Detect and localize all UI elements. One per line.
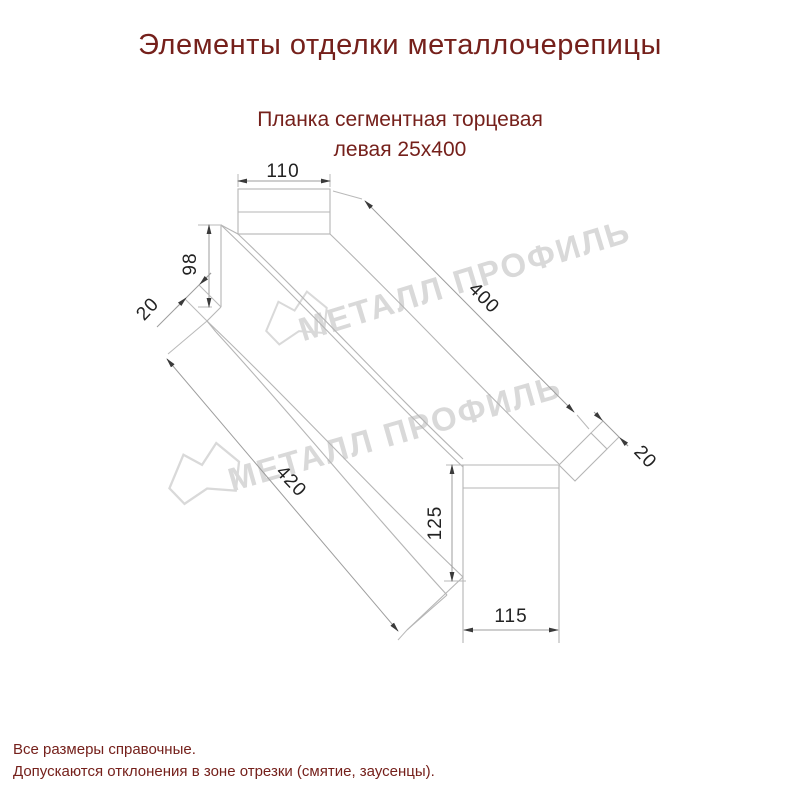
watermark-text-1: МЕТАЛЛ ПРОФИЛЬ <box>294 212 635 348</box>
dim-110: 110 <box>238 161 330 187</box>
dim-125-label: 125 <box>425 506 446 541</box>
dim-420: 420 <box>167 321 407 640</box>
footer-note-2: Допускаются отклонения в зоне отрезки (с… <box>13 761 783 783</box>
dim-20-left: 20 <box>132 273 221 327</box>
dim-20-right: 20 <box>591 412 661 473</box>
dim-20-left-label: 20 <box>132 294 163 325</box>
technical-drawing: МЕТАЛЛ ПРОФИЛЬ МЕТАЛЛ ПРОФИЛЬ <box>0 0 800 800</box>
dim-115: 115 <box>464 606 558 630</box>
footer-note-1: Все размеры справочные. <box>13 739 783 761</box>
dim-98: 98 <box>180 225 222 307</box>
dim-110-label: 110 <box>266 161 299 182</box>
dim-20-right-label: 20 <box>629 442 660 473</box>
footer-notes: Все размеры справочные. Допускаются откл… <box>13 739 783 783</box>
dim-125: 125 <box>425 465 466 581</box>
dim-98-label: 98 <box>180 252 201 275</box>
dim-115-label: 115 <box>494 606 527 627</box>
